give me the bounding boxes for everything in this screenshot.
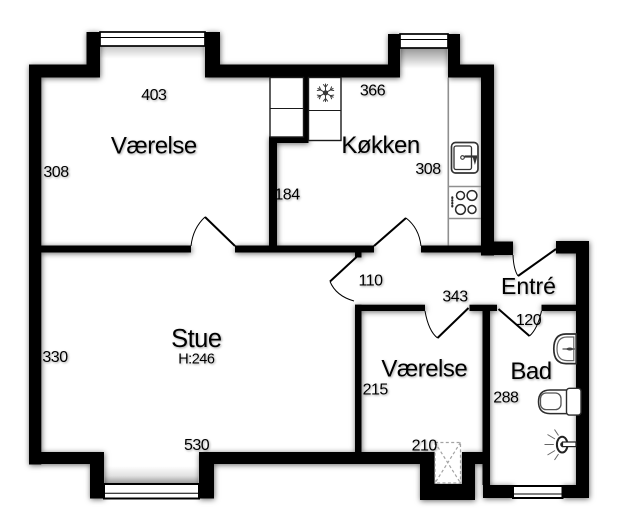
svg-text:Entré: Entré	[501, 273, 556, 299]
svg-text:330: 330	[42, 349, 68, 366]
svg-text:184: 184	[274, 187, 300, 204]
svg-text:120: 120	[516, 312, 542, 329]
svg-text:Værelse: Værelse	[111, 133, 197, 160]
svg-text:530: 530	[184, 437, 210, 454]
svg-text:366: 366	[360, 83, 386, 100]
svg-text:288: 288	[493, 390, 519, 407]
svg-text:210: 210	[412, 438, 438, 455]
svg-text:Stue: Stue	[171, 325, 222, 353]
svg-text:343: 343	[442, 289, 468, 306]
svg-text:H:246: H:246	[178, 352, 215, 368]
svg-text:215: 215	[363, 382, 389, 399]
svg-text:403: 403	[141, 87, 167, 104]
svg-text:308: 308	[43, 164, 69, 181]
svg-text:Bad: Bad	[510, 358, 551, 385]
svg-text:Værelse: Værelse	[381, 356, 467, 383]
svg-text:Køkken: Køkken	[341, 132, 419, 159]
svg-text:110: 110	[358, 273, 383, 290]
svg-text:308: 308	[415, 161, 441, 178]
